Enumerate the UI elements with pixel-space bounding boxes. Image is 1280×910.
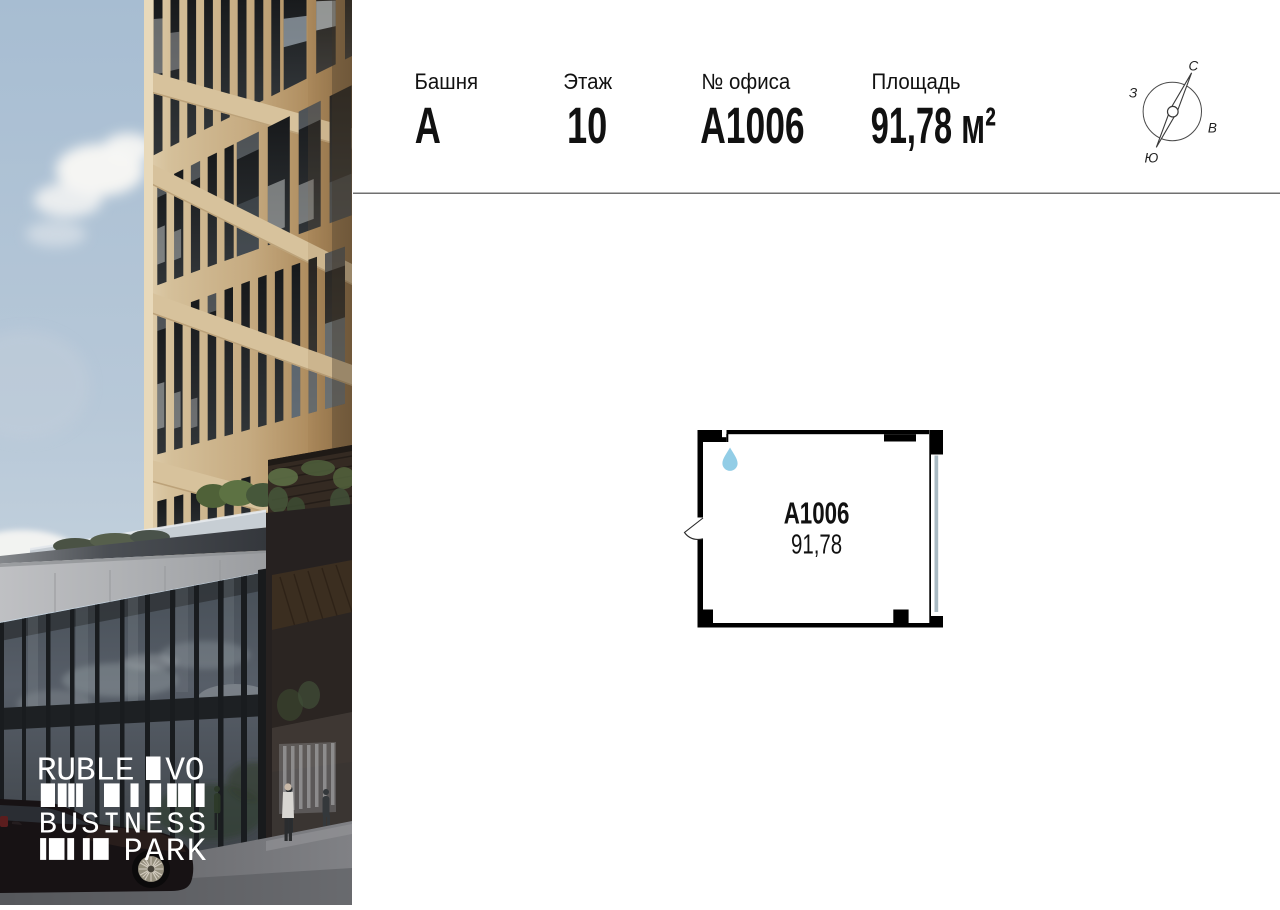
svg-text:В: В xyxy=(1208,121,1217,136)
svg-text:91,78 м²: 91,78 м² xyxy=(871,98,996,155)
svg-text:Площадь: Площадь xyxy=(872,69,961,94)
svg-text:Ю: Ю xyxy=(1145,151,1159,166)
svg-text:№ офиса: № офиса xyxy=(701,69,790,94)
svg-text:Этаж: Этаж xyxy=(563,69,613,94)
svg-text:А1006: А1006 xyxy=(700,98,804,155)
svg-text:А: А xyxy=(415,98,441,155)
svg-text:10: 10 xyxy=(567,98,607,155)
svg-text:С: С xyxy=(1189,59,1199,74)
svg-text:91,78: 91,78 xyxy=(791,530,842,561)
svg-text:З: З xyxy=(1129,86,1138,101)
svg-text:А1006: А1006 xyxy=(784,496,850,530)
svg-text:PARK: PARK xyxy=(124,833,208,870)
svg-text:Башня: Башня xyxy=(415,69,479,94)
